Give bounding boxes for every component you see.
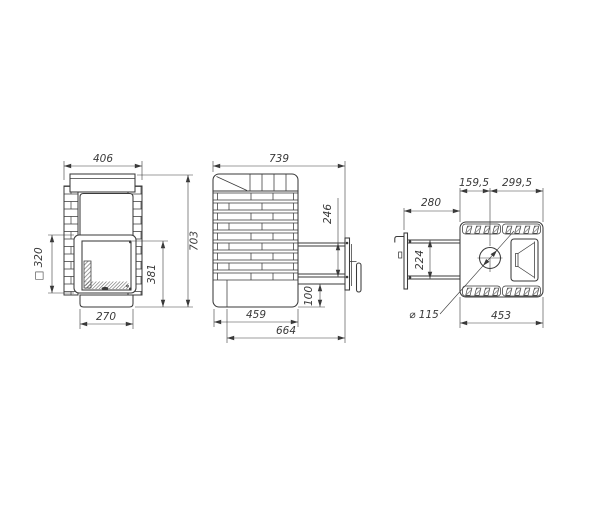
dim-top-body-width: 453 xyxy=(460,297,543,328)
dim-side-tunnel-opening: 246 xyxy=(322,198,348,278)
coal-blob xyxy=(102,287,109,290)
dim-label: 224 xyxy=(414,250,426,270)
dim-label: 459 xyxy=(246,309,266,321)
dim-label: 299,5 xyxy=(502,177,532,189)
handle-top xyxy=(395,237,404,243)
dim-label: 381 xyxy=(146,264,158,284)
dim-label: 703 xyxy=(189,231,201,251)
side-view: 739 246 100 459 664 xyxy=(213,153,361,343)
dim-label: 159,5 xyxy=(459,177,489,189)
dim-top-tunnel-width: 224 xyxy=(409,240,433,279)
latch-top xyxy=(399,252,402,258)
dim-side-depth-with-tunnel: 664 xyxy=(227,309,345,343)
dim-label: 406 xyxy=(93,153,113,165)
door-flange xyxy=(345,238,350,290)
side-body xyxy=(213,174,298,307)
dim-label: ⌀ 115 xyxy=(409,309,439,321)
front-view: 406 703 381 □ 320 270 xyxy=(33,153,201,329)
dim-side-tunnel-bottom-offset: 100 xyxy=(298,284,325,307)
dim-front-base-width: 270 xyxy=(80,309,133,329)
dim-label: 664 xyxy=(276,325,296,337)
base-plinth xyxy=(80,295,133,307)
dim-label: 270 xyxy=(96,311,116,323)
top-cap xyxy=(70,174,135,192)
dim-label: 280 xyxy=(421,197,441,209)
dim-label: 100 xyxy=(303,286,315,306)
dim-top-tunnel-length: 280 xyxy=(404,197,460,230)
glass-corner-dot-top xyxy=(129,241,132,244)
stove-technical-drawing: 406 703 381 □ 320 270 xyxy=(0,0,600,510)
dim-label: 739 xyxy=(269,153,289,165)
dim-label: 246 xyxy=(322,204,334,224)
drawing-canvas: 406 703 381 □ 320 270 xyxy=(0,0,600,510)
front-panel xyxy=(80,194,133,236)
door-flange-top xyxy=(404,233,408,289)
dim-label: 453 xyxy=(491,310,511,322)
glass-corner-dot-bottom xyxy=(129,288,132,291)
dim-label: □ 320 xyxy=(33,247,45,281)
top-view: 280 159,5 299,5 224 453 xyxy=(395,177,543,328)
